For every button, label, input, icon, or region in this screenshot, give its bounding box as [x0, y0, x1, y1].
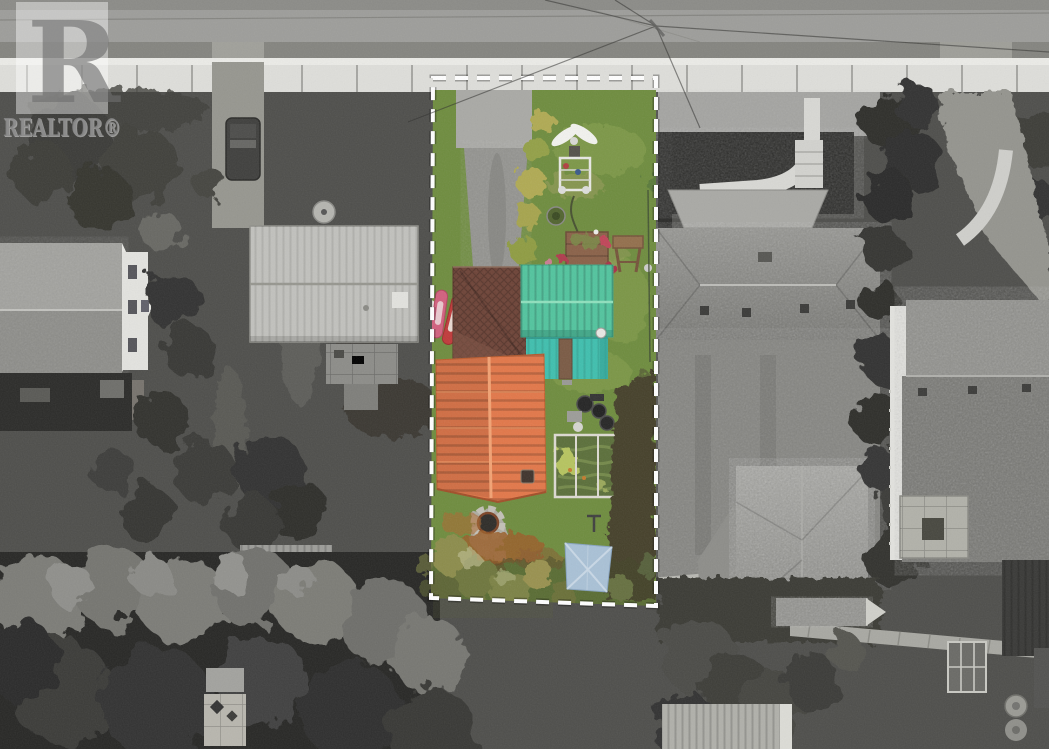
realtor-logo-letter: R — [27, 0, 121, 129]
realtor-label: REALTOR® — [3, 113, 121, 142]
photo-grain — [0, 0, 1049, 749]
realtor-watermark: R REALTOR® REALTOR® — [3, 0, 122, 143]
aerial-scene: R REALTOR® REALTOR® — [0, 0, 1049, 749]
aerial-photo: R REALTOR® REALTOR® — [0, 0, 1049, 749]
